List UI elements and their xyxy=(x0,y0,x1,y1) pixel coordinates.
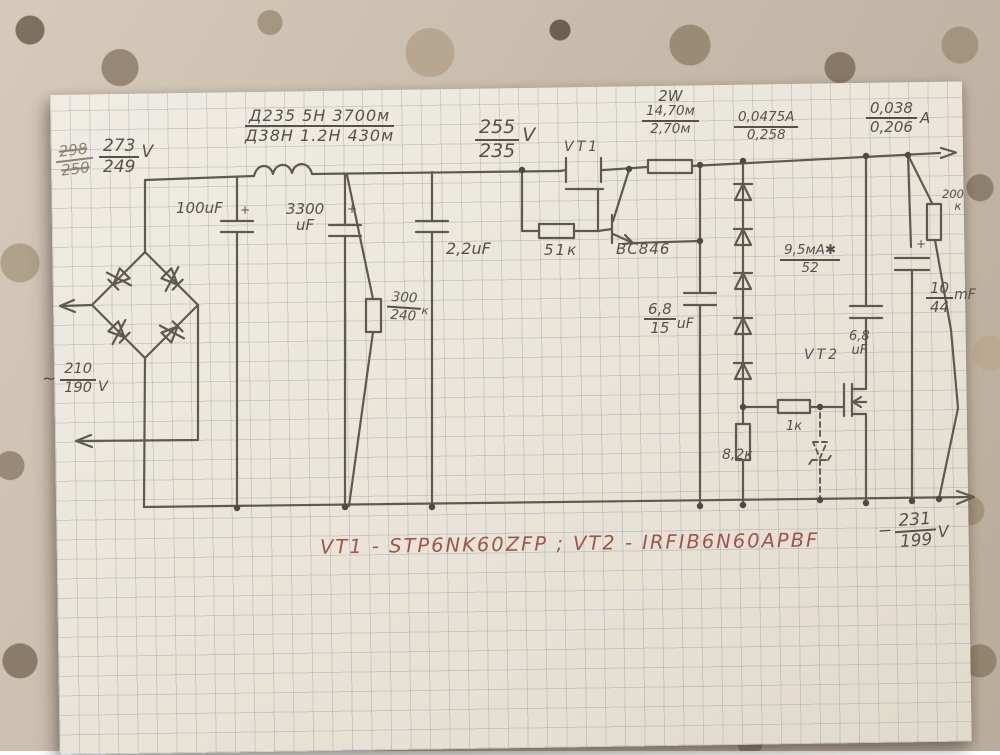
current-0.0475A-top: 0,0475A xyxy=(734,110,798,128)
reg-voltage-fraction: 255 235 xyxy=(475,117,519,161)
current-0.0475A-label: 0,0475A 0,258 xyxy=(734,110,798,142)
sense-resistor-power: 2W xyxy=(658,88,682,104)
cap-10-44mF-plus: + xyxy=(916,238,926,251)
resistor-300k-symbol xyxy=(366,299,381,332)
ac-input-unit: V xyxy=(98,380,108,396)
cap-6.8-15uF-top: 6,8 xyxy=(644,301,676,320)
cap-100uF-plus: + xyxy=(240,204,250,217)
resistor-300k-label: 300 240 к xyxy=(386,290,430,325)
cap-6.8-15uF-fraction: 6,8 15 xyxy=(644,301,676,336)
ac-input-label: ~ 210 190 V xyxy=(42,362,108,396)
zener-current-bottom: 52 xyxy=(802,261,819,276)
bridge-voltage-unit: V xyxy=(141,143,153,161)
cap-6.8-15uF-unit: uF xyxy=(677,317,694,332)
ac-input-fraction: 210 190 xyxy=(60,362,96,396)
cap-3300uF-value: 3300 xyxy=(286,201,324,217)
sense-resistor-fraction: 14,70м 2,70м xyxy=(642,104,699,136)
output-voltage-label: − 231 199 V xyxy=(877,509,950,554)
cap-100uF-label: 100uF xyxy=(176,200,223,216)
bjt-bc846-symbol xyxy=(598,170,700,244)
vt2-label: VT2 xyxy=(804,348,840,363)
output-current-label: 0,038 0,206 A xyxy=(866,100,930,135)
output-voltage-fraction: 231 199 xyxy=(894,509,937,551)
cap-3300uF-plus: + xyxy=(347,203,357,216)
bridge-rectifier-symbol xyxy=(60,180,198,507)
bridge-voltage-bottom: 249 xyxy=(103,158,135,176)
vt2-gate-network xyxy=(743,400,844,498)
bjt-bc846-label: BC846 xyxy=(616,241,670,257)
reg-voltage-label: 255 235 V xyxy=(475,117,535,161)
bottom-rail-wire xyxy=(144,491,974,507)
cap-10-44mF-bottom: 44 xyxy=(930,299,949,315)
resistor-51k-symbol xyxy=(539,224,574,238)
reg-voltage-top: 255 xyxy=(475,117,519,141)
junction-dots xyxy=(234,152,942,511)
cap-10-44mF-top: 10 xyxy=(926,280,953,299)
reg-voltage-bottom: 235 xyxy=(479,141,515,162)
resistor-200k-label: 200 к xyxy=(942,188,964,213)
cap-6.8-15uF-bottom: 15 xyxy=(650,320,669,336)
resistor-51k-branch xyxy=(522,170,598,238)
bridge-voltage-fraction: 273 249 xyxy=(99,137,139,177)
dashed-zener-icon xyxy=(808,442,832,498)
output-voltage-bottom: 199 xyxy=(899,531,933,552)
resistor-51k-label: 51к xyxy=(544,242,578,258)
output-current-top: 0,038 xyxy=(866,100,917,119)
inductor-label-bottom: Д38Н 1.2Н 430м xyxy=(245,127,394,144)
cap-2.2uF-label: 2,2uF xyxy=(446,240,491,257)
cap-6.8-15uF-label: 6,8 15 uF xyxy=(644,301,694,336)
resistor-8.2k-label: 8,2к xyxy=(722,448,753,463)
resistor-300k-fraction: 300 240 xyxy=(386,290,422,324)
resistor-1k-symbol xyxy=(778,400,810,413)
bridge-voltage-top: 273 xyxy=(99,137,139,158)
output-voltage-unit: V xyxy=(937,523,949,541)
old-bridge-voltage-label: 298 250 xyxy=(54,140,95,180)
resistor-300k-suffix: к xyxy=(421,304,429,317)
schematic-drawing xyxy=(0,0,1000,751)
zener-current-label: 9,5мА✱ 52 xyxy=(780,243,840,275)
sense-resistor-symbol xyxy=(648,160,692,173)
cap-3300uF-unit: uF xyxy=(296,217,314,233)
reg-voltage-unit: V xyxy=(522,125,535,146)
vt1-label: VT1 xyxy=(564,140,600,155)
output-current-bottom: 0,206 xyxy=(870,119,913,135)
inductor-symbol xyxy=(254,164,312,176)
output-current-fraction: 0,038 0,206 xyxy=(866,100,917,135)
ac-input-top: 210 xyxy=(60,362,96,381)
capacitor-2.2uF-symbol xyxy=(416,172,448,507)
output-current-unit: A xyxy=(920,110,930,126)
cap-6.8uF-label: 6,8 uF xyxy=(849,330,870,358)
resistor-200k-suffix: к xyxy=(955,200,962,212)
capacitor-100uF-symbol xyxy=(221,178,253,508)
cap-3300uF-label: 3300 uF xyxy=(286,201,324,233)
output-voltage-minus: − xyxy=(877,521,892,540)
cap-6.8uF-unit: uF xyxy=(851,344,867,358)
current-arrow-right-icon xyxy=(941,148,956,158)
ac-tilde: ~ xyxy=(42,370,56,388)
resistor-1k-label: 1к xyxy=(786,420,802,434)
ac-lead-arrow-icon xyxy=(60,300,92,312)
cap-10-44mF-unit: mF xyxy=(954,288,976,303)
bridge-voltage-label: 273 249 V xyxy=(99,137,153,177)
current-0.0475A-bottom: 0,258 xyxy=(747,128,786,143)
cap-10-44mF-fraction: 10 44 xyxy=(926,280,953,315)
inductor-label-top: Д235 5Н 3700м xyxy=(245,107,394,127)
ac-input-bottom: 190 xyxy=(64,381,92,397)
mosfet-vt1-symbol xyxy=(560,158,604,231)
sense-resistor-bottom: 2,70м xyxy=(650,122,690,137)
cap-6.8uF-value: 6,8 xyxy=(849,330,870,344)
cap-10-44mF-label: 10 44 mF xyxy=(926,280,976,315)
top-rail-wire xyxy=(145,148,956,180)
resistor-200k-symbol xyxy=(927,204,941,240)
old-voltage-bottom: 250 xyxy=(60,159,90,179)
zener-current-top: 9,5мА✱ xyxy=(780,243,840,261)
resistor-300k-bottom: 240 xyxy=(390,307,417,323)
capacitor-10-44mF-symbol xyxy=(895,155,929,501)
sense-resistor-top: 14,70м xyxy=(642,104,699,122)
inductor-label: Д235 5Н 3700м Д38Н 1.2Н 430м xyxy=(245,107,394,145)
sense-resistor-label: 2W 14,70м 2,70м xyxy=(642,88,699,136)
